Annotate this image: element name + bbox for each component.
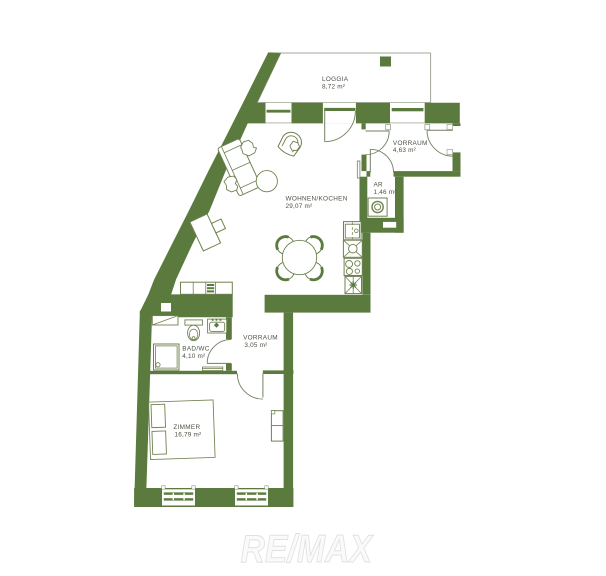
svg-text:ZIMMER: ZIMMER bbox=[173, 424, 200, 431]
svg-text:8,72 m²: 8,72 m² bbox=[322, 84, 345, 91]
svg-text:4,10 m²: 4,10 m² bbox=[182, 353, 205, 360]
svg-text:AR: AR bbox=[374, 182, 384, 189]
svg-text:3,05 m²: 3,05 m² bbox=[244, 342, 267, 349]
svg-text:VORRAUM: VORRAUM bbox=[393, 140, 428, 147]
svg-text:VORRAUM: VORRAUM bbox=[243, 335, 278, 342]
svg-text:29,07 m²: 29,07 m² bbox=[286, 203, 313, 210]
svg-text:BAD/WC: BAD/WC bbox=[182, 345, 209, 352]
svg-text:4,63 m²: 4,63 m² bbox=[393, 147, 416, 154]
svg-text:WOHNEN/KOCHEN: WOHNEN/KOCHEN bbox=[286, 196, 348, 203]
svg-text:16,79 m²: 16,79 m² bbox=[175, 431, 202, 438]
svg-text:LOGGIA: LOGGIA bbox=[322, 76, 349, 83]
svg-text:RE/MAX: RE/MAX bbox=[241, 528, 374, 571]
svg-text:1,46 m²: 1,46 m² bbox=[374, 189, 397, 196]
